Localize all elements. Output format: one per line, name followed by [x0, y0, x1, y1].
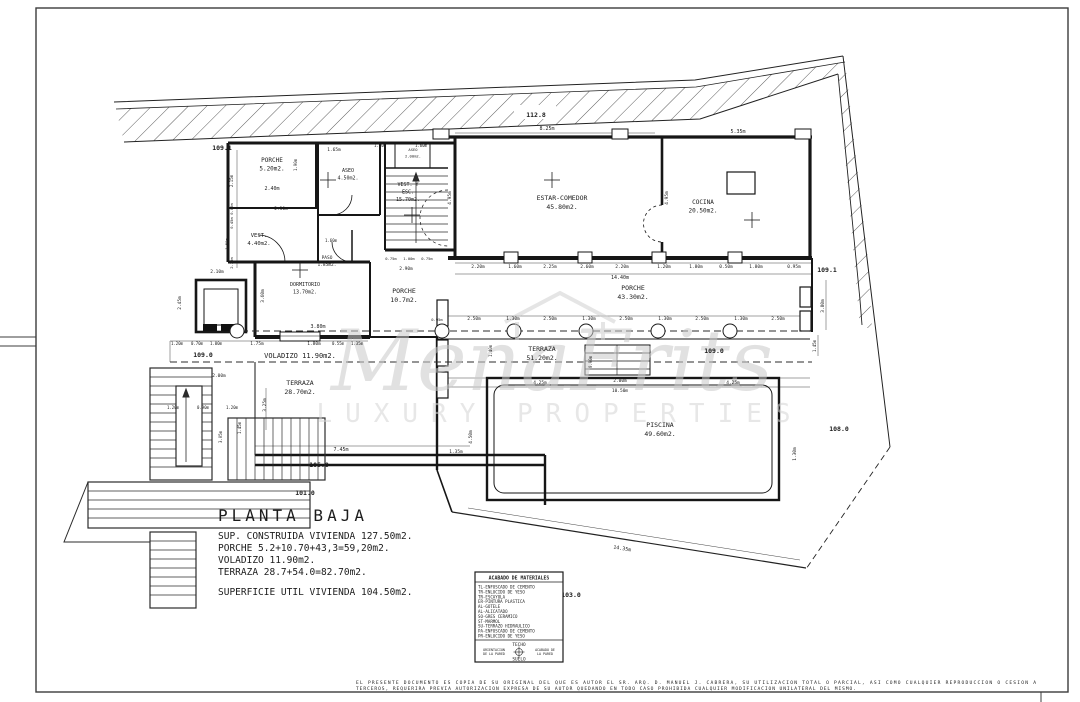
legend-acabado-2: LA PARED — [537, 652, 553, 656]
dimension-label: 8.25m — [539, 126, 554, 132]
dimension-label: 2.00m — [212, 373, 226, 379]
room-area-label: 4.40m2. — [247, 241, 270, 247]
dimension-label: 7.45m — [333, 447, 348, 453]
dimension-label: 1.30m — [734, 316, 748, 322]
legend-material: PR-ENLUCIDO DE YESO — [478, 634, 525, 639]
dimension-label: 2.20m — [471, 264, 485, 270]
elevation-label: 109.0 — [704, 347, 724, 355]
dimension-label: 2.40m — [264, 186, 279, 192]
dimension-label: 2.50m — [695, 316, 709, 322]
dimension-label: 2.50m — [619, 316, 633, 322]
dimension-label: 1.35m — [351, 341, 364, 346]
dimension-label: 0.75m — [385, 256, 397, 261]
room-area-label: 43.30m2. — [617, 293, 648, 301]
dimension-label: 14.40m — [611, 275, 629, 281]
room-area-label: 4.50m2. — [337, 176, 358, 182]
room-label: TERRAZA — [528, 345, 555, 353]
elevation-label: 105.0 — [309, 461, 329, 469]
room-area-label: 20.50m2. — [689, 208, 718, 215]
dimension-label: 1.45m — [812, 339, 817, 352]
site-boundary-hatch-right — [838, 62, 872, 328]
legend-orientacion-2: DE LA PARED — [483, 652, 505, 656]
dimension-label: 1.60m — [325, 238, 338, 243]
dimension-label: 0.90m — [197, 405, 210, 410]
room-area-label: 45.80m2. — [546, 203, 577, 211]
dimension-label: 1.80m — [749, 264, 763, 270]
dimension-label: 2.15m — [229, 174, 234, 187]
dimension-label: 0.55m — [332, 341, 345, 346]
dimension-label: 1.65m — [327, 147, 341, 153]
dimension-label: 0.80m — [229, 203, 234, 215]
legend-suelo: SUELO — [512, 657, 526, 663]
dimension-label: 1.90m — [293, 158, 298, 171]
dimension-label: 2.20m — [615, 264, 629, 270]
dimension-label: 1.30m — [506, 316, 520, 322]
plan-title: PLANTA BAJA — [218, 506, 368, 525]
dimension-label: 1.30m — [582, 316, 596, 322]
room-area-label: 10.7m2. — [390, 296, 417, 304]
dimension-label: 1.30m — [792, 447, 798, 461]
dimension-label: 2.50m — [771, 316, 785, 322]
dimension-label: 0.45m — [229, 217, 234, 229]
room-label: VEST. Y — [397, 182, 418, 188]
dimension-label: 2.30m — [274, 206, 288, 212]
dimension-label: 1.35m — [449, 449, 463, 455]
dimension-label: 2.60m — [580, 264, 594, 270]
dimension-label: 4.95m — [447, 191, 453, 205]
room-label: ESTAR-COMEDOR — [537, 194, 588, 202]
dimension-label: 4.25m — [726, 380, 740, 386]
room-label: PORCHE — [392, 287, 416, 295]
dimension-label: 1.60m — [508, 264, 522, 270]
dimension-label: 1.00m — [210, 341, 223, 346]
dimension-label: 2.25m — [543, 264, 557, 270]
elevation-label: 112.8 — [526, 111, 546, 119]
dimension-label: 0.50m — [719, 264, 733, 270]
room-area-label: 1.85m2. — [318, 262, 337, 268]
dimension-label: VOLADIZO 11.90m2. — [264, 352, 336, 360]
dimension-label: 1.20m — [226, 405, 239, 410]
floor-plan-sheet: MenaFrits LUXURY PROPERTIES PORCHE5.20m2… — [0, 0, 1080, 702]
watermark-tagline: LUXURY PROPERTIES — [316, 399, 803, 429]
dimension-label: 0.70m — [191, 341, 204, 346]
dimension-label: 3.80m — [310, 324, 325, 330]
dimension-label: 1.50m — [224, 238, 229, 250]
summary-line: SUPERFICIE UTIL VIVIENDA 104.50m2. — [218, 587, 412, 598]
dimension-label: 1.80m — [689, 264, 703, 270]
room-label: PASO — [322, 255, 333, 261]
column — [230, 324, 244, 338]
dimension-label: 0.75m — [421, 256, 433, 261]
dimension-label: 14.35m — [613, 545, 632, 554]
dimension-label: 4.50m — [468, 430, 474, 444]
room-area-label: 15.70m2. — [396, 197, 420, 203]
summary-line: PORCHE 5.2+10.70+43,3=59,20m2. — [218, 543, 390, 554]
room-area-label: 2.00m2. — [405, 153, 421, 158]
elevation-label: 109.1 — [212, 144, 232, 152]
room-area-label: 13.70m2. — [293, 290, 317, 296]
room-label: ESC. — [402, 190, 414, 196]
dimension-label: 4.25m — [533, 380, 547, 386]
disclaimer-line-2: TERCEROS, REQUERIRA PREVIA AUTORIZACION … — [356, 686, 856, 692]
dimension-label: 3.60m — [260, 289, 266, 303]
dimension-label: 5.35m — [730, 129, 745, 135]
dimension-label: 2.00m — [613, 378, 627, 384]
room-label: PORCHE — [261, 157, 283, 164]
room-area-label: 49.60m2. — [644, 430, 675, 438]
dimension-label: 1.20m — [171, 341, 184, 346]
room-label: ASEO — [342, 168, 354, 174]
dimension-label: 1.20m — [167, 405, 180, 410]
dimension-label: 2.90m — [399, 266, 413, 272]
summary-line: SUP. CONSTRUIDA VIVIENDA 127.50m2. — [218, 531, 412, 542]
dimension-label: 2.45m — [177, 296, 183, 310]
disclaimer: EL PRESENTE DOCUMENTO ES COPIA DE SU ORI… — [356, 680, 1036, 692]
dimension-label: 10.50m — [612, 388, 629, 394]
elevation-label: 101.0 — [295, 489, 315, 497]
room-label: PORCHE — [621, 284, 645, 292]
dimension-label: 3.80m — [820, 299, 826, 313]
legend-title: ACABADO DE MATERIALES — [489, 576, 550, 582]
elevation-label: 109.0 — [193, 351, 213, 359]
dimension-label: 3.25m — [262, 398, 268, 412]
room-area-label: 5.20m2. — [259, 166, 284, 173]
summary-line: TERRAZA 28.7+54.0=82.70m2. — [218, 567, 367, 578]
dimension-label: 1.45m — [237, 421, 242, 434]
kitchen-island — [727, 172, 755, 194]
dimension-label: 4.95m — [664, 191, 670, 205]
stair-direction-arrow — [413, 173, 419, 181]
room-label: PISCINA — [646, 421, 673, 429]
room-area-label: 51.20m2. — [526, 354, 557, 362]
dimension-label: 2.50m — [543, 316, 557, 322]
dimension-label: 1.30m — [658, 316, 672, 322]
elevation-label: 108.0 — [829, 425, 849, 433]
dimension-label: 2.10m — [210, 269, 224, 275]
disclaimer-line-1: EL PRESENTE DOCUMENTO ES COPIA DE SU ORI… — [356, 680, 1036, 686]
watermark: MenaFrits LUXURY PROPERTIES — [316, 293, 803, 429]
dimension-label: 3.05m — [218, 430, 223, 443]
room-area-label: 28.70m2. — [284, 388, 315, 396]
elevation-label: 103.0 — [561, 591, 581, 599]
dimension-label: 2.50m — [467, 316, 481, 322]
dimension-label: 1.75m — [250, 341, 264, 347]
dimension-label: 1.00m — [403, 256, 415, 261]
area-summary-block: PLANTA BAJA SUP. CONSTRUIDA VIVIENDA 127… — [218, 506, 412, 598]
summary-line: VOLADIZO 11.90m2. — [218, 555, 315, 566]
dimension-label: 2.20m — [229, 257, 234, 269]
elevation-label: 109.1 — [817, 266, 837, 274]
dimension-label: 1.40m — [374, 143, 387, 148]
window-marks — [280, 129, 811, 341]
room-label: DORMITORIO — [290, 282, 320, 288]
dimension-label: 0.95m — [431, 317, 443, 322]
dimension-label: 1.80m — [307, 341, 321, 347]
room-label: VEST. — [251, 233, 268, 239]
dimension-label: 1.60m — [415, 143, 428, 148]
room-label: TERRAZA — [286, 379, 313, 387]
floor-plan-canvas: MenaFrits LUXURY PROPERTIES PORCHE5.20m2… — [0, 0, 1080, 702]
room-label: COCINA — [692, 199, 714, 206]
dimension-label: 1.40m — [488, 344, 493, 357]
dimension-label: 0.95m — [787, 264, 801, 270]
dimension-label: 0.90m — [588, 355, 593, 368]
materials-legend: ACABADO DE MATERIALES TL-ENFOSCADO DE CE… — [475, 572, 563, 663]
dimension-label: 1.20m — [657, 264, 671, 270]
